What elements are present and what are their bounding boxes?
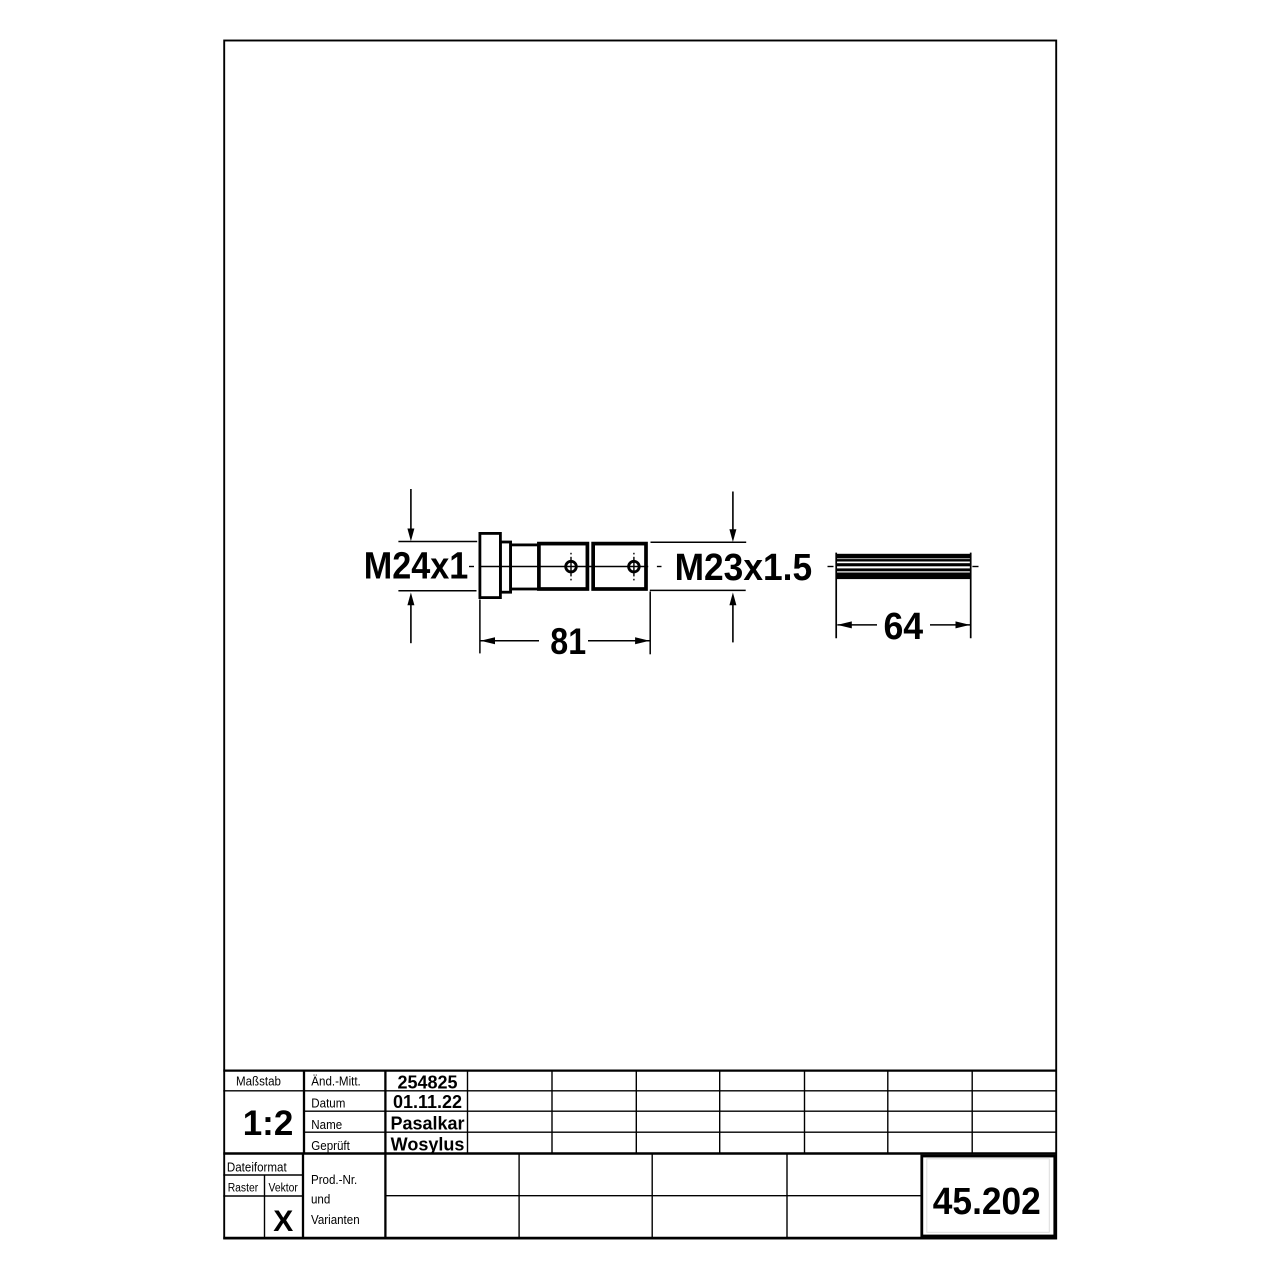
svg-text:1:2: 1:2: [243, 1104, 294, 1143]
svg-text:Varianten: Varianten: [311, 1212, 360, 1227]
svg-text:Raster: Raster: [228, 1182, 259, 1195]
svg-text:Vektor: Vektor: [269, 1182, 299, 1195]
svg-text:Änd.-Mitt.: Änd.-Mitt.: [311, 1074, 360, 1089]
svg-text:64: 64: [883, 605, 923, 647]
svg-text:M23x1.5: M23x1.5: [675, 546, 813, 588]
svg-text:Pasalkar: Pasalkar: [390, 1114, 464, 1134]
svg-text:Wosylus: Wosylus: [391, 1135, 465, 1155]
svg-text:Prod.-Nr.: Prod.-Nr.: [311, 1172, 357, 1187]
svg-text:Name: Name: [311, 1117, 342, 1132]
svg-text:01.11.22: 01.11.22: [393, 1092, 462, 1112]
svg-text:und: und: [311, 1192, 330, 1207]
svg-text:254825: 254825: [397, 1073, 457, 1093]
svg-text:X: X: [273, 1205, 293, 1238]
svg-text:M24x1: M24x1: [364, 544, 469, 587]
svg-text:81: 81: [550, 622, 586, 663]
svg-text:45.202: 45.202: [933, 1180, 1041, 1222]
svg-text:Dateiformat: Dateiformat: [227, 1160, 287, 1175]
svg-text:Maßstab: Maßstab: [236, 1074, 281, 1089]
svg-text:Datum: Datum: [311, 1096, 345, 1111]
svg-text:Geprüft: Geprüft: [311, 1138, 350, 1153]
